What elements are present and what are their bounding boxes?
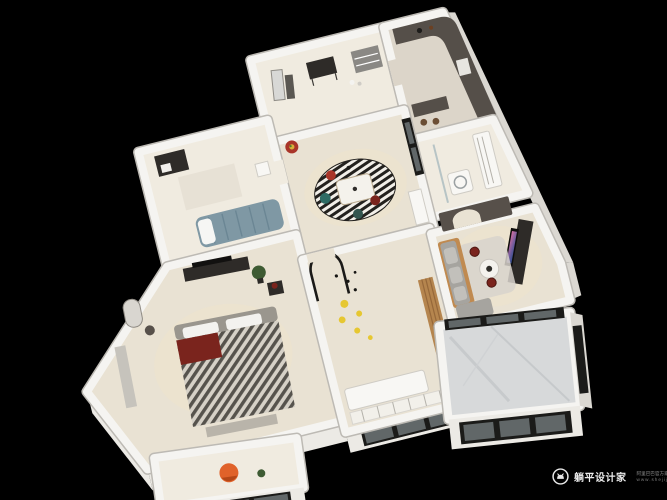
cat-circle-logo-icon — [552, 468, 569, 485]
balcony — [438, 305, 595, 449]
nightstand — [255, 161, 271, 177]
watermark: 躺平设计家 阿里巴巴官方家装设计平台 www.shejijia.com — [552, 468, 666, 485]
watermark-info: 阿里巴巴官方家装设计平台 www.shejijia.com — [637, 471, 667, 483]
watermark-url: www.shejijia.com — [637, 477, 667, 483]
render-canvas: 躺平设计家 阿里巴巴官方家装设计平台 www.shejijia.com — [0, 0, 667, 500]
floorplan-render — [0, 0, 667, 500]
washing-machine — [447, 169, 474, 196]
watermark-brand: 躺平设计家 — [574, 469, 627, 484]
